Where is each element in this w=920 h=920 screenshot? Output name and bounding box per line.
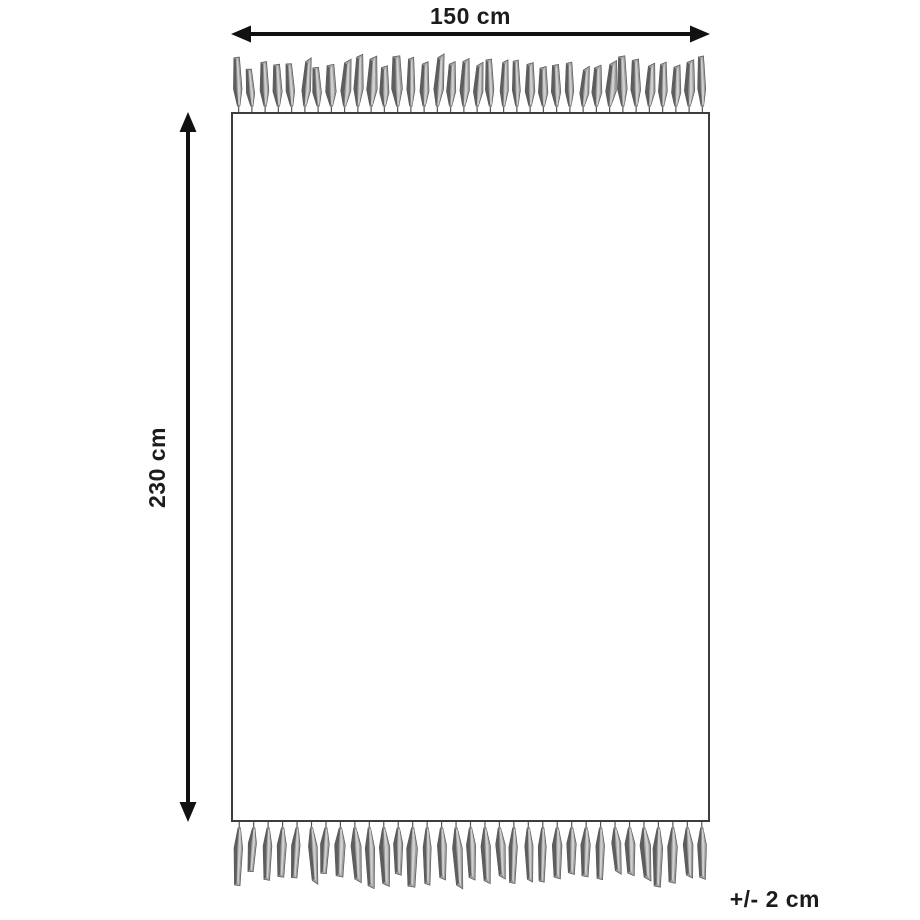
tolerance-label: +/- 2 cm (697, 886, 820, 913)
width-dimension-label: 150 cm (231, 3, 710, 30)
bottom-fringe-illustration (234, 821, 706, 889)
rug-outline (232, 113, 709, 821)
dimension-diagram: 150 cm 230 cm +/- 2 cm (0, 0, 920, 920)
top-fringe-illustration (233, 54, 705, 113)
height-dimension-label-wrap: 230 cm (131, 112, 183, 822)
height-dimension-label: 230 cm (144, 426, 171, 507)
